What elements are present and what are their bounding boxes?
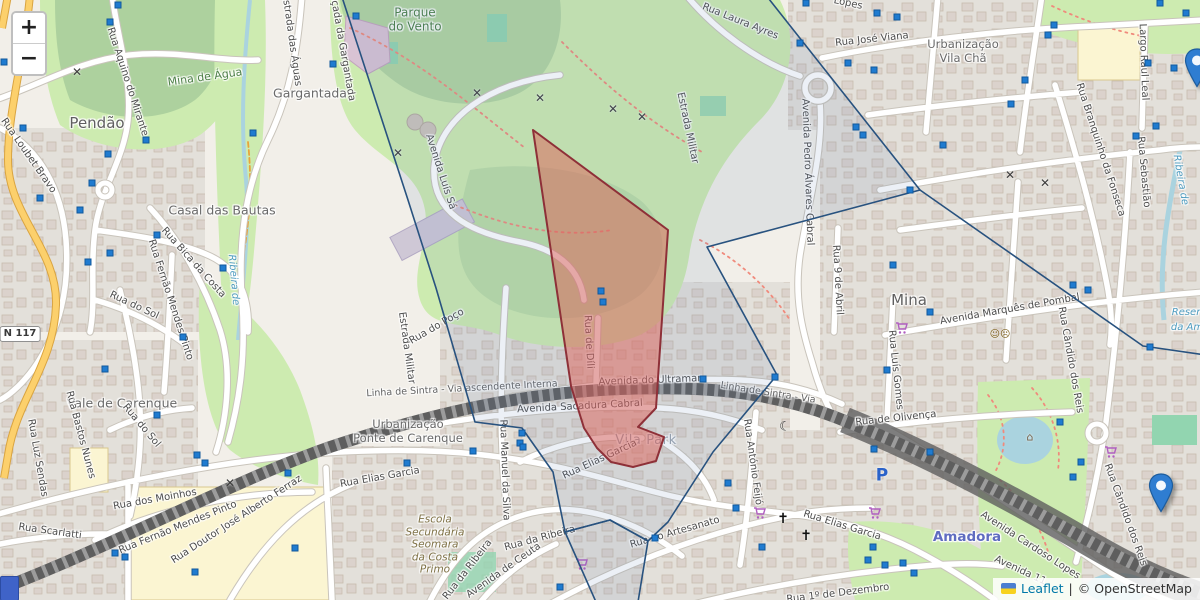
zoom-out-button[interactable]: − [13, 44, 45, 74]
map-overlays [0, 0, 1200, 600]
blue-polyline-east[interactable] [920, 190, 1200, 355]
attribution-bar: Leaflet | © OpenStreetMap [993, 578, 1200, 600]
leaflet-map[interactable]: PendãoMinaGargantadaCasal das BautasVale… [0, 0, 1200, 600]
zoom-control: + − [11, 11, 47, 76]
attribution-separator: | [1069, 581, 1073, 596]
leaflet-link[interactable]: Leaflet [1021, 581, 1064, 596]
ukraine-flag-icon [1001, 583, 1016, 594]
openstreetmap-link[interactable]: © OpenStreetMap [1078, 581, 1192, 596]
zoom-in-button[interactable]: + [13, 13, 45, 44]
